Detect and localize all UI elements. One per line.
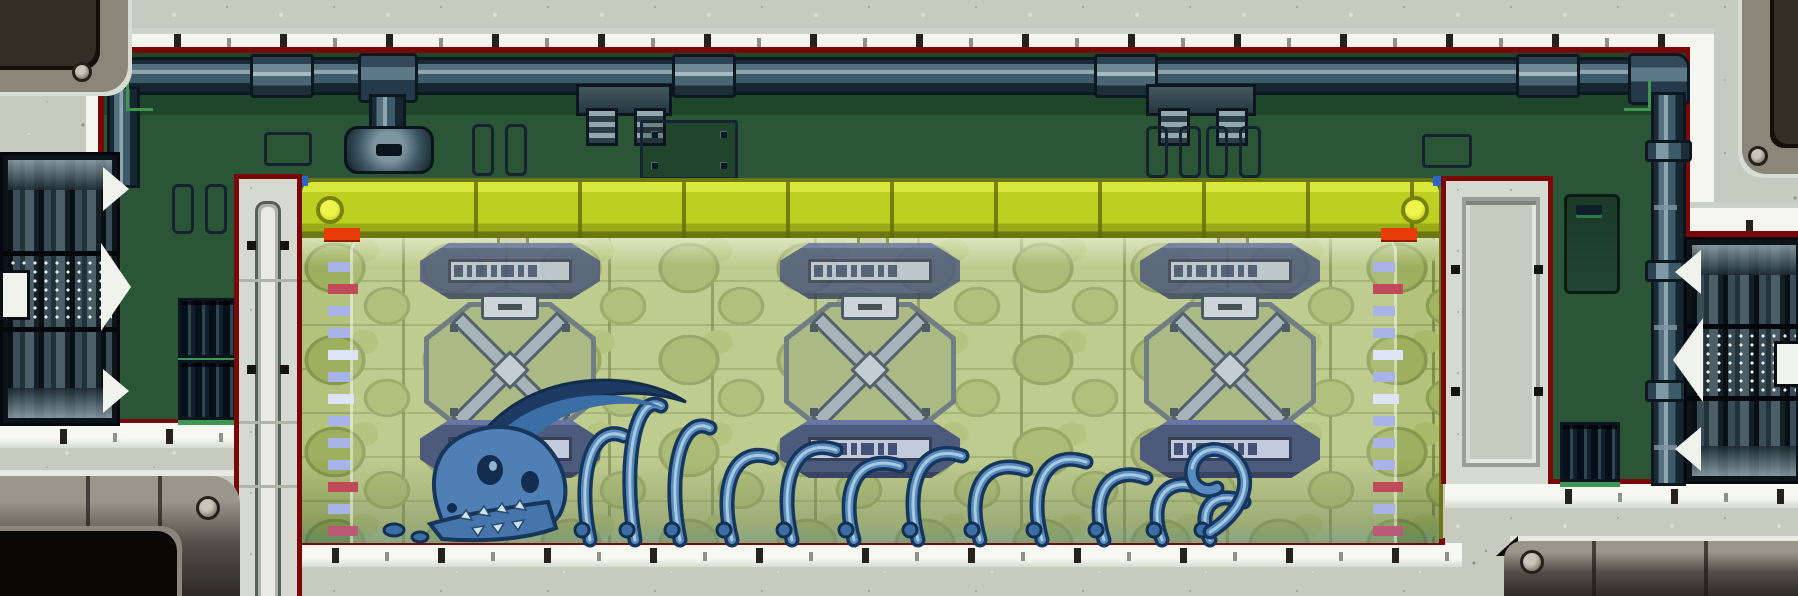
wall-tick	[862, 548, 869, 563]
tank-corner-screw	[316, 196, 344, 224]
pipe-sleeve	[1516, 54, 1580, 98]
wall-tick-small	[1724, 493, 1728, 502]
wall-tick-small	[227, 38, 231, 47]
wall-tick-small	[757, 38, 761, 47]
wall-tick-small	[969, 38, 973, 47]
wall-outline-panel	[264, 132, 312, 166]
gauge-tick	[1373, 504, 1395, 514]
gauge-tick	[328, 482, 358, 492]
valve-slot-icon	[376, 144, 402, 156]
skeleton-ribs	[575, 404, 1244, 540]
gauge-tick	[328, 394, 354, 404]
wall-tick-small	[219, 433, 223, 442]
wall-tick-small	[1618, 493, 1622, 502]
wall-slot-pair	[1146, 126, 1201, 172]
tank-gauge-right	[1373, 262, 1413, 540]
wall-tick	[166, 429, 173, 444]
gauge-tick	[328, 460, 350, 470]
wall-tick-small	[1287, 38, 1291, 47]
gauge-tick	[1373, 284, 1403, 294]
door-slot-icon	[1576, 205, 1602, 215]
gauge-tick	[328, 262, 350, 272]
wall-tick-small	[1075, 38, 1079, 47]
tank-gauge-left	[328, 262, 368, 540]
tank-top-frame	[302, 182, 1439, 238]
gauge-tick	[328, 504, 350, 514]
gauge-tick	[1373, 306, 1395, 316]
pipe-sleeve	[672, 54, 736, 98]
gauge-tick	[1373, 526, 1403, 536]
pillar-groove	[255, 201, 281, 596]
wall-tick-small	[1499, 38, 1503, 47]
green-corner-bracket	[126, 80, 153, 111]
wall-tick-small	[385, 552, 389, 561]
wall-tick	[1392, 548, 1399, 563]
pipe-collar	[1645, 140, 1692, 162]
wall-slot-pair	[1206, 126, 1261, 172]
gauge-tick	[328, 526, 358, 536]
wall-tick	[968, 548, 975, 563]
wall-tick	[332, 548, 339, 563]
gauge-tick	[1373, 416, 1395, 426]
gauge-tick	[328, 328, 350, 338]
pipe-ring	[1654, 445, 1677, 450]
wall-tick-small	[703, 552, 707, 561]
green-corner-bracket	[1624, 80, 1651, 111]
bolt-icon	[1748, 146, 1768, 166]
gauge-tick	[328, 350, 358, 360]
gauge-tick	[328, 372, 350, 382]
bolt-icon	[72, 62, 92, 82]
doorway-opening	[0, 526, 182, 596]
doorframe-bottom-left	[0, 470, 250, 596]
wall-tick	[1777, 489, 1784, 504]
pipe-end-valve	[344, 126, 434, 174]
wall-tick	[1074, 548, 1081, 563]
gauge-tick	[328, 306, 350, 316]
wall-tick-small	[1127, 552, 1131, 561]
gauge-top-marker-right	[1381, 228, 1417, 240]
gauge-tick	[1373, 438, 1395, 448]
tank-corner-screw	[1401, 196, 1429, 224]
game-viewport[interactable]	[0, 0, 1798, 596]
wall-tick-small	[439, 38, 443, 47]
wall-tick-small	[545, 38, 549, 47]
wall-tick-small	[1393, 38, 1397, 47]
wall-tick-small	[1445, 552, 1449, 561]
wall-tick-small	[333, 38, 337, 47]
specimen-tank	[298, 178, 1443, 539]
wall-tick	[438, 548, 445, 563]
vent-grille	[178, 360, 238, 420]
gauge-tick	[328, 416, 350, 426]
bolted-panel	[640, 120, 738, 180]
wall-tick-small	[651, 38, 655, 47]
gauge-tick	[1373, 262, 1395, 272]
wall-tick	[650, 548, 657, 563]
access-door	[1564, 194, 1620, 294]
main-pipe	[106, 57, 1668, 95]
gauge-tick	[1373, 372, 1395, 382]
wall-tick-small	[1233, 552, 1237, 561]
wall-tick	[1180, 548, 1187, 563]
wall-tick	[544, 548, 551, 563]
pipe-ring	[1654, 205, 1677, 210]
gauge-tick	[1373, 350, 1403, 360]
wall-tick	[60, 429, 67, 444]
pillar-right	[1441, 176, 1553, 484]
vent-grille	[1560, 422, 1620, 482]
wall-tick	[1565, 489, 1572, 504]
corner-machine-top-left	[0, 0, 132, 96]
machinery-right	[1684, 237, 1798, 484]
gauge-tick	[1373, 460, 1395, 470]
wall-tick-small	[1339, 552, 1343, 561]
wall-tick-small	[863, 38, 867, 47]
wall-tick-small	[1181, 38, 1185, 47]
wall-tick	[1671, 489, 1678, 504]
wall-tick-small	[915, 552, 919, 561]
gauge-tick	[328, 438, 350, 448]
wall-band-tank-bottom	[302, 543, 1462, 567]
wall-tick-small	[113, 433, 117, 442]
wall-tick	[756, 548, 763, 563]
pillar-panel	[1462, 197, 1540, 467]
gauge-tick	[328, 284, 358, 294]
specimen-skeleton	[332, 342, 1272, 542]
gauge-top-marker-left	[324, 228, 360, 240]
bolt-icon	[196, 496, 220, 520]
wall-tick-small	[1605, 38, 1609, 47]
wall-tick	[1286, 548, 1293, 563]
machinery-light	[3, 273, 27, 317]
gauge-tick	[1373, 482, 1403, 492]
gauge-tick	[1373, 328, 1395, 338]
vent-grille	[178, 298, 238, 358]
pipe-sleeve	[250, 54, 314, 98]
wall-slot-pair	[172, 184, 227, 228]
corner-machine-top-right	[1738, 0, 1798, 178]
gauge-tick	[1373, 394, 1399, 404]
pipe-ring	[1654, 325, 1677, 330]
machinery-left	[0, 152, 120, 426]
bolt-icon	[1520, 550, 1544, 574]
wall-slot-pair	[472, 124, 527, 170]
wall-outline-panel	[1422, 134, 1472, 168]
machinery-light	[1777, 344, 1798, 384]
wall-tick-small	[597, 552, 601, 561]
wall-tick-small	[809, 552, 813, 561]
wall-tick-small	[491, 552, 495, 561]
doorframe-bottom-right	[1496, 534, 1798, 596]
wall-tick-small	[1021, 552, 1025, 561]
